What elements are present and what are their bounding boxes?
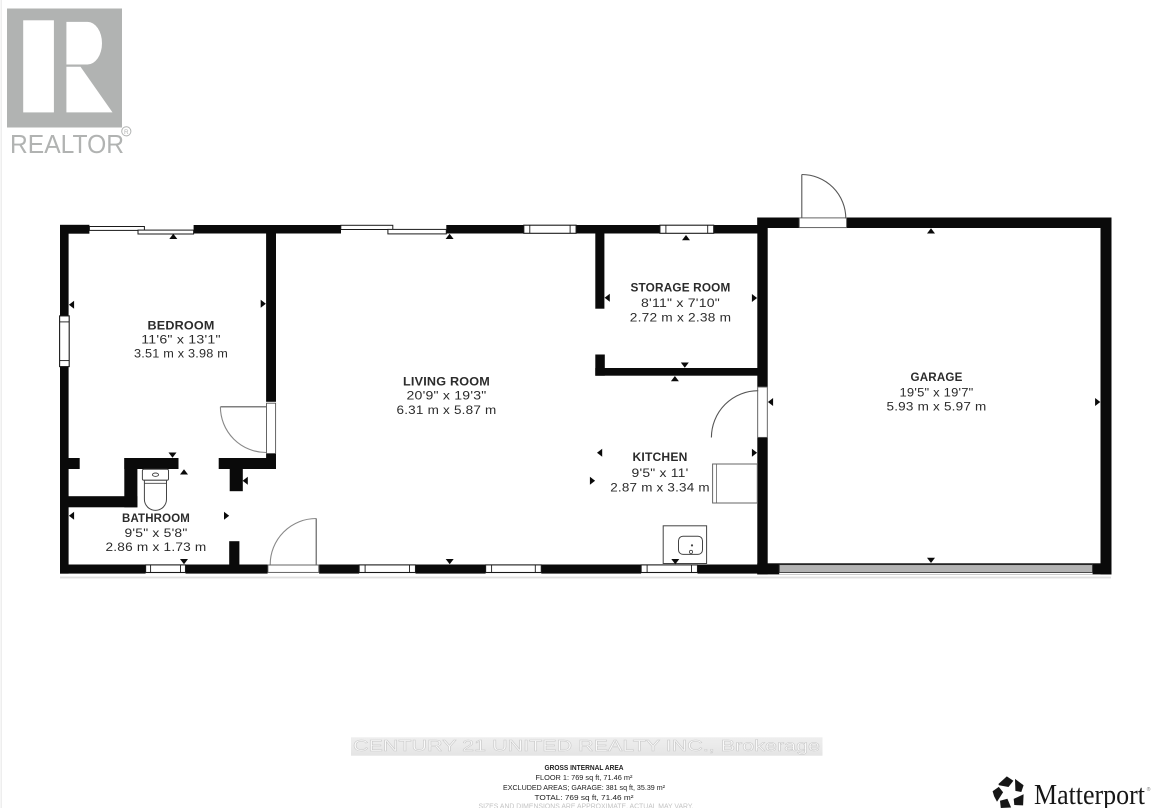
- svg-text:20'9" x 19'3": 20'9" x 19'3": [407, 389, 487, 403]
- svg-text:5.93 m x 5.97 m: 5.93 m x 5.97 m: [887, 400, 987, 414]
- svg-text:2.86 m x 1.73 m: 2.86 m x 1.73 m: [106, 540, 207, 554]
- svg-text:GROSS INTERNAL AREA: GROSS INTERNAL AREA: [545, 763, 625, 772]
- svg-text:6.31 m x 5.87 m: 6.31 m x 5.87 m: [397, 403, 497, 417]
- svg-text:2.87 m x 3.34 m: 2.87 m x 3.34 m: [610, 481, 710, 495]
- svg-text:8'11" x 7'10": 8'11" x 7'10": [641, 296, 720, 310]
- svg-text:9'5" x 11': 9'5" x 11': [632, 466, 689, 480]
- svg-text:GARAGE: GARAGE: [911, 370, 963, 384]
- svg-text:STORAGE ROOM: STORAGE ROOM: [631, 281, 731, 295]
- svg-text:EXCLUDED AREAS; GARAGE: 381 sq: EXCLUDED AREAS; GARAGE: 381 sq ft, 35.39…: [503, 783, 666, 792]
- svg-text:BATHROOM: BATHROOM: [122, 511, 190, 525]
- svg-text:2.72 m x 2.38 m: 2.72 m x 2.38 m: [630, 311, 732, 325]
- svg-text:CENTURY 21 UNITED REALTY INC.,: CENTURY 21 UNITED REALTY INC., Brokerage: [353, 738, 820, 755]
- svg-text:FLOOR 1: 769 sq ft, 71.46 m²: FLOOR 1: 769 sq ft, 71.46 m²: [536, 773, 634, 782]
- svg-text:19'5" x 19'7": 19'5" x 19'7": [900, 386, 974, 400]
- svg-text:BEDROOM: BEDROOM: [148, 319, 215, 333]
- svg-text:3.51 m x 3.98 m: 3.51 m x 3.98 m: [134, 347, 228, 361]
- svg-text:®: ®: [1147, 786, 1151, 793]
- svg-text:LIVING ROOM: LIVING ROOM: [403, 375, 490, 389]
- svg-text:R: R: [124, 129, 129, 136]
- svg-text:Matterport: Matterport: [1034, 780, 1145, 808]
- svg-text:REALTOR: REALTOR: [10, 129, 124, 159]
- svg-text:9'5" x 5'8": 9'5" x 5'8": [125, 526, 188, 540]
- svg-text:11'6" x 13'1": 11'6" x 13'1": [141, 333, 221, 347]
- svg-text:KITCHEN: KITCHEN: [633, 450, 688, 464]
- svg-text:SIZES AND DIMENSIONS ARE APPRO: SIZES AND DIMENSIONS ARE APPROXIMATE, AC…: [479, 801, 694, 808]
